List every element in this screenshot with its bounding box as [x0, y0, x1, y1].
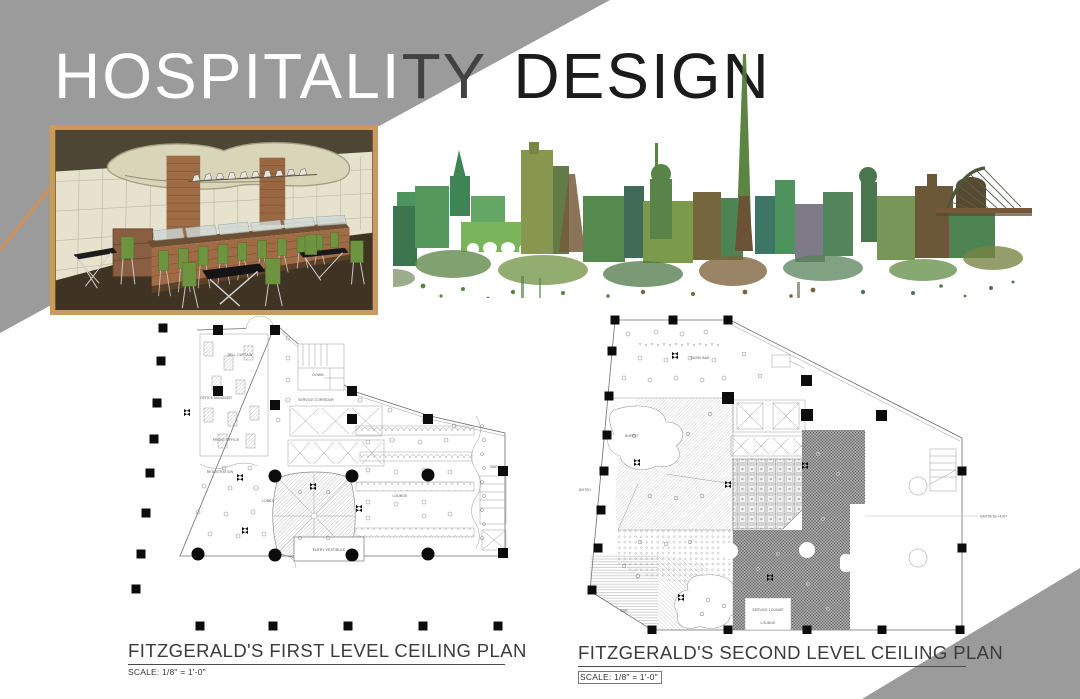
first-level-plan-figure: BELL CAPTAIN OFFICE MANAGER FRONT OFFICE… [128, 316, 518, 677]
dublin-skyline-watercolor [393, 46, 1037, 298]
room-label-bell-captain: BELL CAPTAIN [228, 353, 253, 357]
room-label-lounge2: LOUNGE [761, 621, 777, 625]
plan2-caption: FITZGERALD'S SECOND LEVEL CEILING PLAN [578, 642, 1022, 664]
plan1-caption-rule [128, 664, 505, 665]
room-label-service-corridor: SERVICE CORRIDOR [298, 398, 334, 402]
plan1-caption: FITZGERALD'S FIRST LEVEL CEILING PLAN [128, 640, 518, 662]
room-label-registration: REGISTRATION [207, 470, 234, 474]
room-label-lounge: LOUNGE [393, 494, 409, 498]
interior-rendering [55, 130, 373, 310]
first-level-ceiling-plan: BELL CAPTAIN OFFICE MANAGER FRONT OFFICE… [128, 316, 518, 632]
room-label-buffet: BUFFET [625, 434, 639, 438]
column-markers-interior [213, 325, 508, 558]
room-label-entry-vestibule: ENTRY VESTIBULE [313, 548, 346, 552]
room-label-sushi-bar: SUSHI BAR [690, 356, 710, 360]
room-label-front-office: FRONT OFFICE [213, 438, 240, 442]
skyline-image [393, 46, 1037, 298]
room-label-lobby: LOBBY [262, 499, 274, 503]
column-markers-interior-2 [722, 375, 887, 421]
room-label-maitre: MAITRE DE HOST [980, 515, 1007, 519]
second-level-plan-figure: MAITRE DE HOST [578, 314, 1022, 685]
stair-label-down: DOWN [312, 373, 324, 377]
presentation-board: HOSPITALITYDESIGN [0, 0, 1080, 699]
plan2-scale: SCALE: 1/8" = 1'-0" [578, 671, 662, 684]
room-label-bar: BAR [490, 465, 498, 469]
interior-rendering-frame [50, 125, 378, 315]
plan1-scale: SCALE: 1/8" = 1'-0" [128, 667, 518, 677]
room-label-bistro: BISTRO [579, 488, 591, 492]
title-segment-light: HOSPITALI [54, 40, 402, 112]
second-level-ceiling-plan: MAITRE DE HOST [578, 314, 1022, 634]
room-label-office-manager: OFFICE MANAGER [200, 396, 232, 400]
room-label-bar2: BAR [620, 609, 628, 613]
room-label-service-lounge: SERVICE LOUNGE [752, 608, 784, 612]
plan2-caption-rule [578, 666, 966, 667]
